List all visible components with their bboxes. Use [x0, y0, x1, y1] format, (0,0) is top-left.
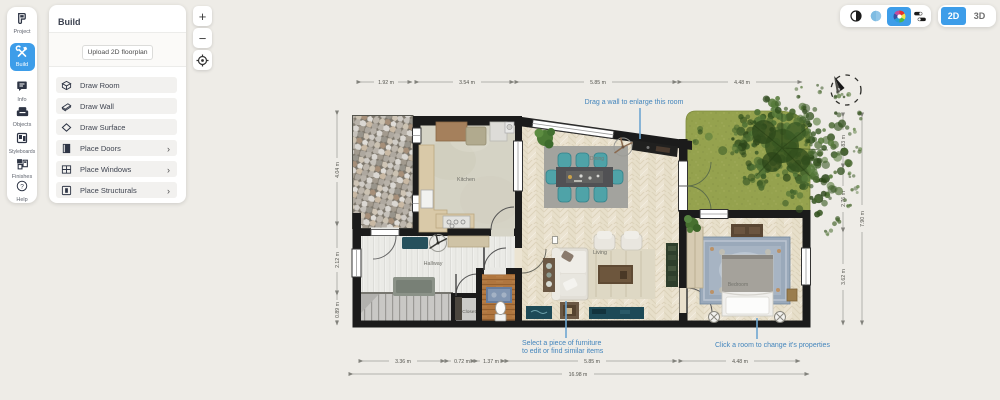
svg-text:to edit or find similar items: to edit or find similar items — [522, 348, 604, 355]
svg-text:Living: Living — [593, 250, 607, 256]
svg-text:N: N — [838, 88, 841, 92]
svg-text:4.48 m: 4.48 m — [734, 80, 750, 86]
svg-text:Closet: Closet — [462, 309, 476, 315]
svg-text:0.72 m: 0.72 m — [454, 359, 470, 365]
svg-text:2.12 m: 2.12 m — [335, 252, 341, 268]
svg-text:Click a room to change it's pr: Click a room to change it's properties — [715, 342, 830, 349]
svg-text:4.48 m: 4.48 m — [732, 359, 748, 365]
svg-text:1.92 m: 1.92 m — [378, 80, 394, 86]
svg-text:Hallway: Hallway — [424, 261, 443, 267]
svg-text:?: ? — [20, 184, 24, 191]
svg-text:Bedroom: Bedroom — [728, 282, 748, 288]
svg-text:Select a piece of furniture: Select a piece of furniture — [522, 340, 601, 347]
svg-text:5.85 m: 5.85 m — [590, 80, 606, 86]
svg-text:3.54 m: 3.54 m — [459, 80, 475, 86]
svg-text:Drag a wall to enlarge this ro: Drag a wall to enlarge this room — [585, 99, 684, 106]
svg-text:3.36 m: 3.36 m — [395, 359, 411, 365]
svg-text:Dining: Dining — [590, 156, 604, 162]
svg-text:5.85 m: 5.85 m — [584, 359, 600, 365]
svg-text:0.89 m: 0.89 m — [335, 302, 341, 318]
svg-text:16.98 m: 16.98 m — [569, 372, 588, 378]
svg-text:7.90 m: 7.90 m — [860, 211, 866, 227]
svg-text:Kitchen: Kitchen — [457, 177, 475, 183]
svg-text:3.62 m: 3.62 m — [841, 269, 847, 285]
svg-text:1.37 m: 1.37 m — [483, 359, 499, 365]
svg-text:4.04 m: 4.04 m — [335, 162, 341, 178]
